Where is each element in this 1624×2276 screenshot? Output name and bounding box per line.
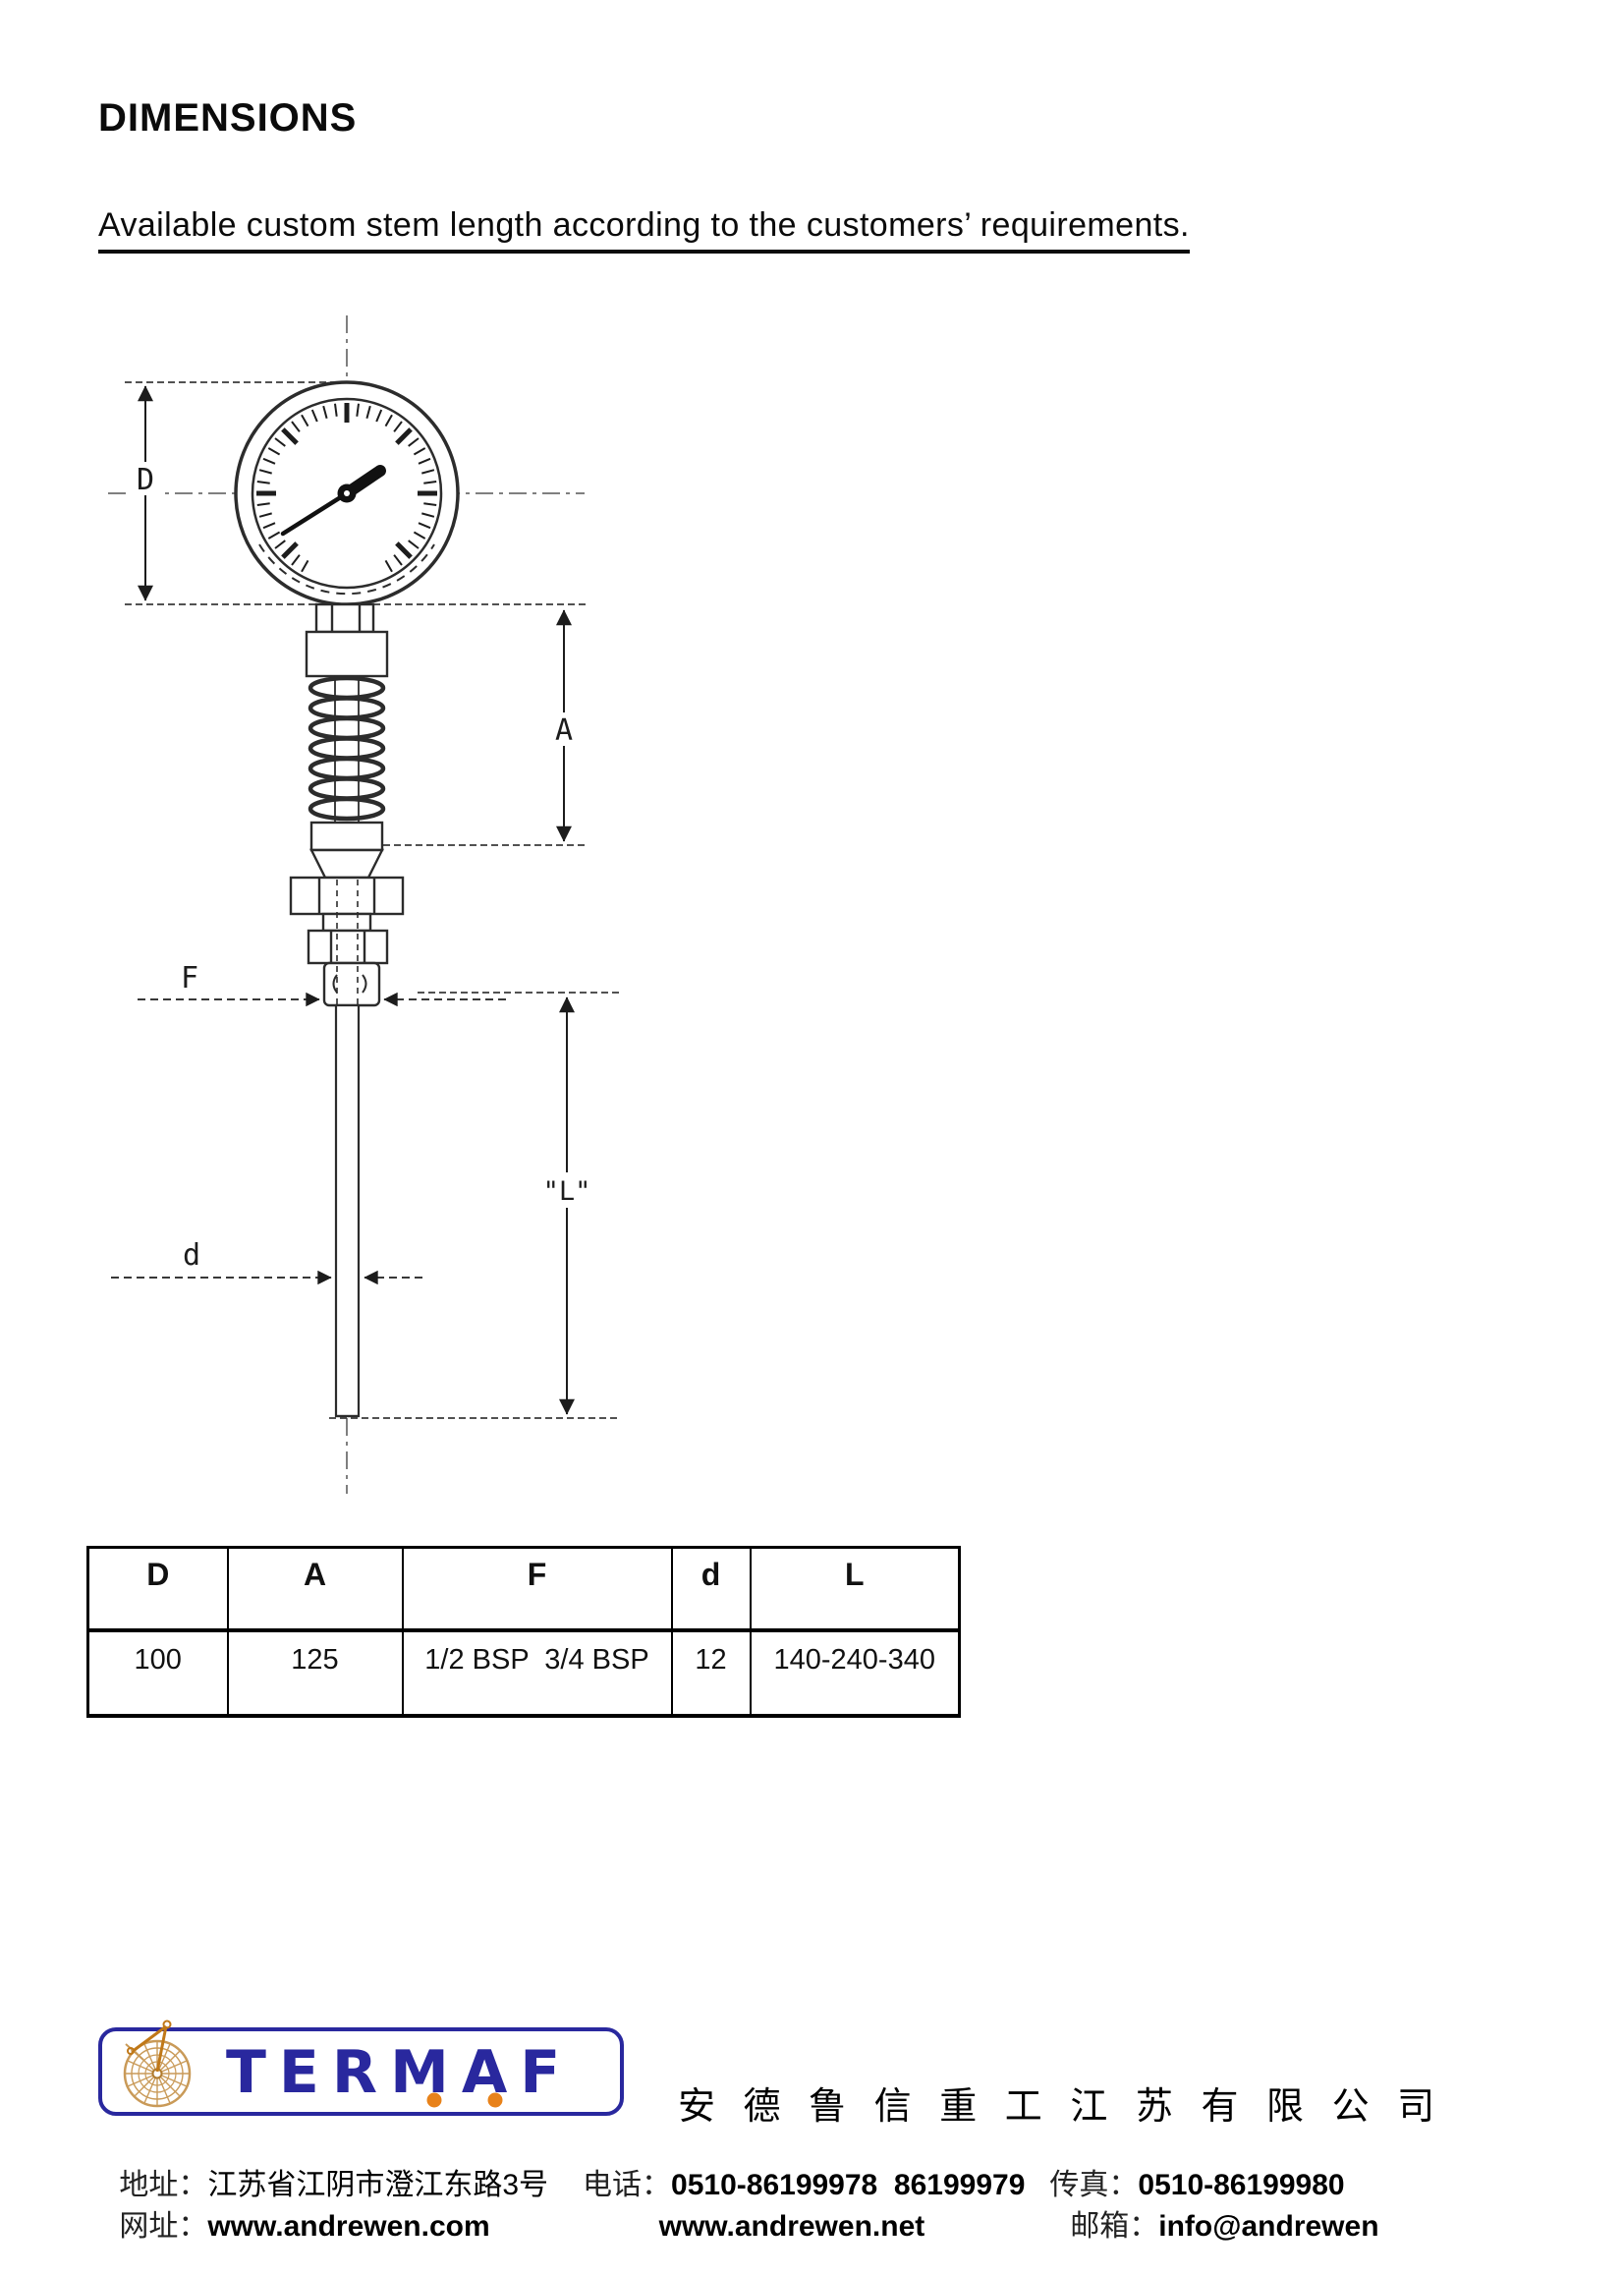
dimension-label-L: "L" [543, 1176, 591, 1207]
table-cell: 140-240-340 [751, 1630, 960, 1716]
dimension-label-D: D [137, 463, 154, 497]
website-net: www.andrewen.net [659, 2210, 925, 2243]
table-cell: 1/2 BSP 3/4 BSP [403, 1630, 672, 1716]
table-header-cell: L [751, 1548, 960, 1631]
dimension-label-d: d [183, 1238, 200, 1273]
website-label: 网址： [119, 2210, 207, 2243]
termaf-logo: TERMAF [98, 2006, 626, 2116]
email-label: 邮箱： [1070, 2210, 1158, 2243]
datasheet-page: DIMENSIONS Available custom stem length … [0, 0, 1624, 2276]
table-row: 100 125 1/2 BSP 3/4 BSP 12 140-240-340 [88, 1630, 960, 1716]
table-header-cell: F [403, 1548, 672, 1631]
connection-stack [291, 604, 403, 1005]
dimension-L: "L" [541, 997, 592, 1414]
table-header-cell: A [228, 1548, 403, 1631]
company-name: 安 德 鲁 信 重 工 江 苏 有 限 公 司 [678, 2076, 1443, 2130]
table-cell: 12 [672, 1630, 751, 1716]
table-header-cell: d [672, 1548, 751, 1631]
table-cell: 125 [228, 1630, 403, 1716]
table-header-row: D A F d L [88, 1548, 960, 1631]
contact-line-2: 网址：www.andrewen.comwww.andrewen.net邮箱：in… [86, 2168, 1379, 2276]
website-com: www.andrewen.com [207, 2210, 489, 2243]
logo-dot-a [488, 2093, 503, 2108]
table-cell: 100 [88, 1630, 228, 1716]
dimension-label-F: F [181, 961, 198, 996]
dimension-d: d [111, 1238, 422, 1278]
dimensions-table: D A F d L 100 125 1/2 BSP 3/4 BSP 12 140… [86, 1546, 961, 1718]
technical-drawing: D A F "L" d [84, 310, 634, 1504]
dimension-F: F [138, 961, 506, 999]
stem [336, 1005, 359, 1416]
subtitle: Available custom stem length according t… [98, 206, 1190, 254]
dimension-label-A: A [555, 713, 573, 748]
table-header-cell: D [88, 1548, 228, 1631]
dimension-D: D [130, 386, 161, 600]
gauge-dial [236, 382, 458, 604]
dimension-A: A [548, 610, 580, 841]
email-value: info@andrewen [1158, 2210, 1378, 2243]
logo-wordmark: TERMAF [226, 2038, 573, 2107]
logo-dot-m [427, 2093, 442, 2108]
page-title: DIMENSIONS [98, 96, 357, 141]
